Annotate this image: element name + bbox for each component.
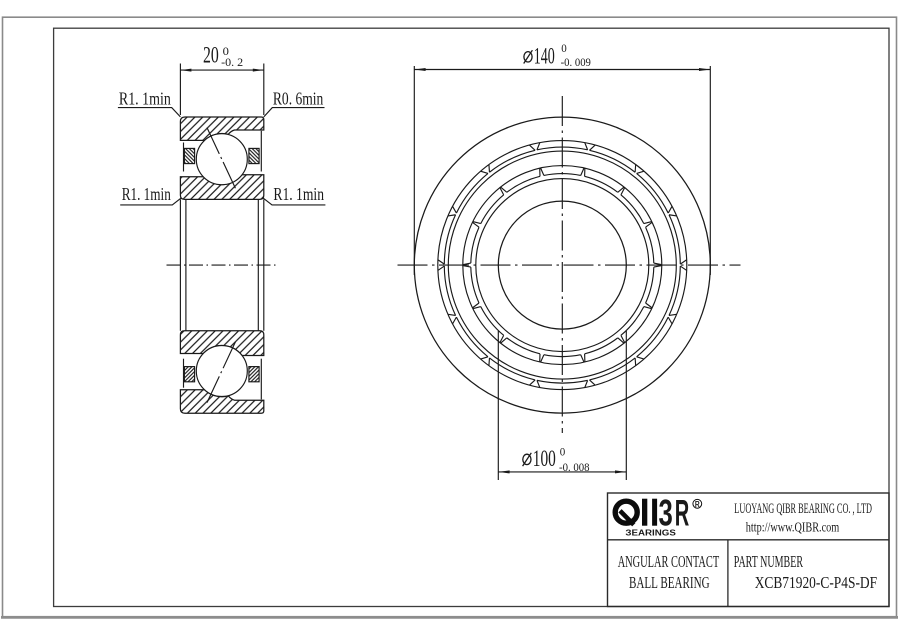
svg-text:0: 0 — [560, 444, 566, 458]
svg-text:BALL BEARING: BALL BEARING — [629, 573, 710, 592]
svg-text:-0. 008: -0. 008 — [559, 460, 590, 474]
svg-text:R1. 1min: R1. 1min — [119, 88, 171, 108]
svg-text:R0. 6min: R0. 6min — [273, 88, 323, 108]
svg-text:140: 140 — [534, 43, 555, 68]
svg-text:R: R — [695, 500, 700, 509]
svg-text:PART NUMBER: PART NUMBER — [734, 552, 804, 571]
svg-text:ANGULAR CONTACT: ANGULAR CONTACT — [618, 552, 720, 571]
svg-text:http://www.QIBR.com: http://www.QIBR.com — [746, 521, 840, 536]
svg-text:-0. 009: -0. 009 — [561, 55, 591, 69]
svg-text:-0. 2: -0. 2 — [221, 55, 243, 69]
svg-text:100: 100 — [533, 446, 556, 471]
svg-text:0: 0 — [561, 41, 567, 55]
svg-text:20: 20 — [203, 43, 219, 68]
svg-text:R1. 1min: R1. 1min — [122, 184, 171, 204]
svg-text:XCB71920-C-P4S-DF: XCB71920-C-P4S-DF — [755, 573, 877, 592]
svg-text:R: R — [675, 492, 690, 534]
svg-text:ЗEARINGS: ЗEARINGS — [625, 527, 676, 537]
svg-text:R1. 1min: R1. 1min — [273, 184, 324, 204]
svg-text:LUOYANG QIBR BEARING CO. , LTD: LUOYANG QIBR BEARING CO. , LTD — [734, 501, 872, 517]
